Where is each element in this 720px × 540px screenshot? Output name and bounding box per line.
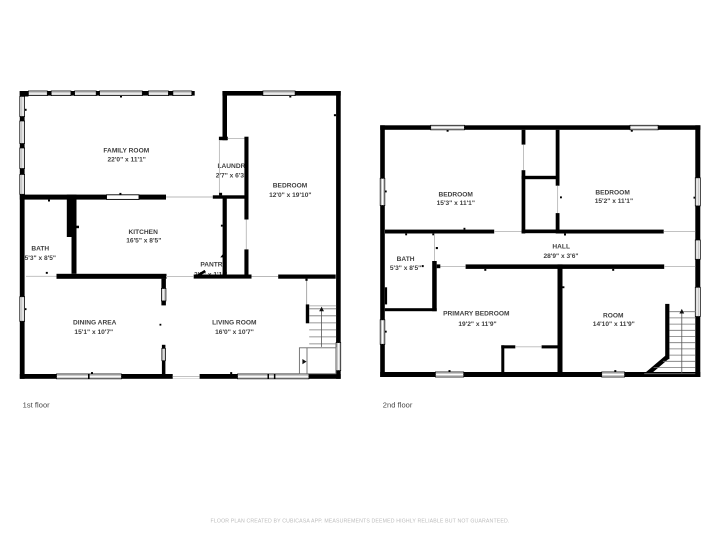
svg-text:HALL: HALL [552, 243, 570, 250]
svg-text:28'9" x 3'6": 28'9" x 3'6" [543, 253, 578, 260]
svg-text:BEDROOM: BEDROOM [273, 183, 308, 190]
svg-text:BEDROOM: BEDROOM [438, 191, 473, 198]
svg-text:5'3" x 8'5": 5'3" x 8'5" [390, 265, 421, 272]
svg-text:FAMILY ROOM: FAMILY ROOM [103, 148, 149, 155]
svg-text:2'7" x 6'3": 2'7" x 6'3" [216, 173, 247, 180]
svg-text:KITCHEN: KITCHEN [129, 229, 159, 236]
svg-text:16'0" x 10'7": 16'0" x 10'7" [215, 329, 254, 336]
svg-text:19'2" x 11'9": 19'2" x 11'9" [458, 321, 496, 328]
svg-text:14'10" x 11'9": 14'10" x 11'9" [593, 321, 635, 328]
svg-text:DINING AREA: DINING AREA [73, 320, 117, 327]
svg-text:15'3" x 11'1": 15'3" x 11'1" [437, 200, 475, 207]
svg-text:FLOOR PLAN CREATED BY CUBICASA: FLOOR PLAN CREATED BY CUBICASA APP. MEAS… [211, 519, 510, 525]
svg-text:BATH: BATH [31, 245, 49, 252]
svg-text:BEDROOM: BEDROOM [595, 189, 630, 196]
svg-text:PRIMARY BEDROOM: PRIMARY BEDROOM [443, 311, 510, 318]
svg-text:1st floor: 1st floor [23, 401, 51, 410]
svg-text:ROOM: ROOM [603, 313, 624, 320]
svg-text:16'5" x 8'5": 16'5" x 8'5" [126, 238, 161, 245]
svg-text:12'0" x 19'10": 12'0" x 19'10" [269, 192, 311, 199]
svg-text:BATH: BATH [397, 256, 415, 263]
svg-text:15'1" x 10'7": 15'1" x 10'7" [74, 329, 113, 336]
svg-text:15'2" x 11'1": 15'2" x 11'1" [595, 198, 633, 205]
svg-text:22'0" x 11'1": 22'0" x 11'1" [108, 156, 146, 163]
svg-text:2nd floor: 2nd floor [383, 401, 413, 410]
svg-text:5'3" x 8'5": 5'3" x 8'5" [25, 255, 56, 262]
svg-text:LIVING ROOM: LIVING ROOM [212, 320, 257, 327]
